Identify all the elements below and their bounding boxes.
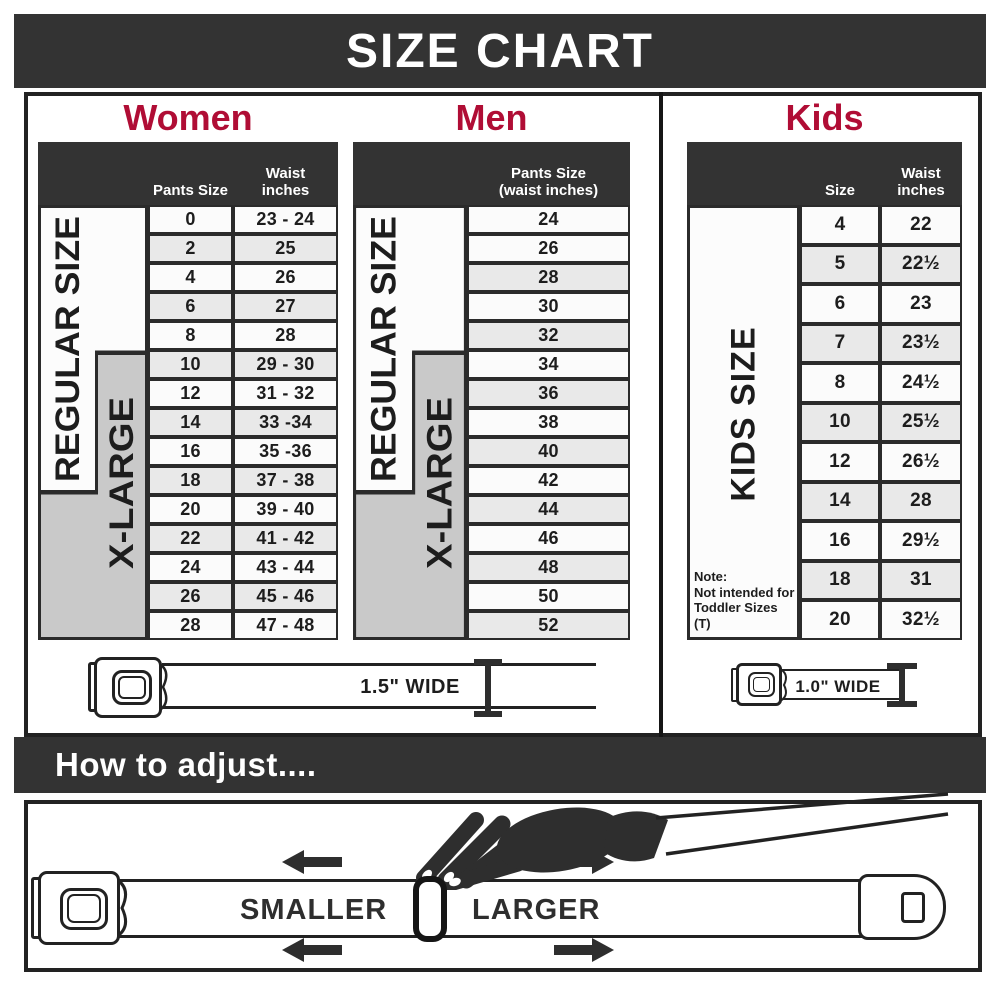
- size-cell: 52: [467, 611, 630, 640]
- size-cell: 10: [148, 350, 233, 379]
- size-cell: 37 - 38: [233, 466, 338, 495]
- women-xlarge-label: X-LARGE: [103, 397, 141, 569]
- size-cell: 22: [148, 524, 233, 553]
- size-cell: 5: [800, 245, 880, 285]
- howto-buckle-inner-detail: [67, 894, 101, 923]
- size-cell: 27: [233, 292, 338, 321]
- size-cell: 31: [880, 561, 962, 601]
- kids-width-measure-icon: [884, 663, 920, 707]
- size-cell: 22½: [880, 245, 962, 285]
- size-cell: 35 -36: [233, 437, 338, 466]
- size-cell: 23½: [880, 324, 962, 364]
- arrow-left-icon: [282, 938, 346, 962]
- kids-size-label: KIDS SIZE: [724, 326, 763, 501]
- arrow-right-icon: [550, 938, 614, 962]
- kids-note: Note: Not intended for Toddler Sizes (T): [694, 569, 797, 631]
- size-cell: 28: [467, 263, 630, 292]
- women-regular-size-label: REGULAR SIZE: [49, 216, 87, 482]
- men-grid: 242628303234363840424446485052: [467, 205, 630, 640]
- hand-adjust-illustration: [390, 790, 950, 890]
- women-size-regions: REGULAR SIZE X-LARGE: [38, 205, 148, 640]
- size-cell: 28: [233, 321, 338, 350]
- size-cell: 33 -34: [233, 408, 338, 437]
- howto-heading: How to adjust....: [55, 746, 317, 784]
- size-cell: 23 - 24: [233, 205, 338, 234]
- kids-waist-col-header: Waist inches: [880, 165, 962, 199]
- size-cell: 24: [467, 205, 630, 234]
- size-cell: 26: [233, 263, 338, 292]
- size-cell: 25½: [880, 403, 962, 443]
- size-cell: 28: [880, 482, 962, 522]
- size-cell: 39 - 40: [233, 495, 338, 524]
- size-chart-infographic: SIZE CHART Women Men Kids Pants Size Wai…: [0, 0, 1000, 1000]
- size-cell: 4: [800, 205, 880, 245]
- size-cell: 26½: [880, 442, 962, 482]
- men-size-regions: REGULAR SIZE X-LARGE: [353, 205, 467, 640]
- size-cell: 14: [800, 482, 880, 522]
- size-cell: 24: [148, 553, 233, 582]
- belt-adjuster-slider: [413, 876, 447, 942]
- women-heading: Women: [38, 96, 338, 140]
- size-cell: 0: [148, 205, 233, 234]
- kids-heading: Kids: [687, 96, 962, 140]
- kids-buckle-inner-detail: [753, 677, 770, 692]
- kids-size-region: KIDS SIZE Note: Not intended for Toddler…: [687, 205, 800, 640]
- size-cell: 41 - 42: [233, 524, 338, 553]
- size-cell: 16: [800, 521, 880, 561]
- women-table-header: Pants Size Waist inches: [38, 142, 338, 205]
- size-cell: 8: [800, 363, 880, 403]
- size-cell: 20: [148, 495, 233, 524]
- size-cell: 29½: [880, 521, 962, 561]
- men-pants-col-header: Pants Size (waist inches): [467, 165, 630, 199]
- size-cell: 50: [467, 582, 630, 611]
- size-cell: 23: [880, 284, 962, 324]
- size-cell: 45 - 46: [233, 582, 338, 611]
- size-cell: 6: [800, 284, 880, 324]
- size-cell: 36: [467, 379, 630, 408]
- size-cell: 10: [800, 403, 880, 443]
- adult-buckle-inner-detail: [118, 676, 146, 699]
- tongue-slot: [901, 892, 925, 923]
- size-cell: 4: [148, 263, 233, 292]
- size-cell: 6: [148, 292, 233, 321]
- kids-size-col-header: Size: [800, 182, 880, 199]
- size-cell: 29 - 30: [233, 350, 338, 379]
- size-cell: 26: [148, 582, 233, 611]
- size-cell: 26: [467, 234, 630, 263]
- size-cell: 8: [148, 321, 233, 350]
- size-cell: 7: [800, 324, 880, 364]
- size-cell: 32½: [880, 600, 962, 640]
- size-cell: 28: [148, 611, 233, 640]
- adult-belt-width-label: 1.5" WIDE: [340, 676, 480, 699]
- men-xlarge-label: X-LARGE: [421, 397, 460, 569]
- size-cell: 30: [467, 292, 630, 321]
- larger-label: LARGER: [472, 894, 597, 927]
- size-cell: 32: [467, 321, 630, 350]
- smaller-label: SMALLER: [240, 894, 385, 927]
- size-cell: 42: [467, 466, 630, 495]
- women-pants-col-header: Pants Size: [148, 182, 233, 199]
- size-cell: 24½: [880, 363, 962, 403]
- size-cell: 16: [148, 437, 233, 466]
- kids-grid: 422522½623723½824½1025½1226½14281629½183…: [800, 205, 962, 640]
- size-cell: 12: [800, 442, 880, 482]
- men-regular-size-label: REGULAR SIZE: [365, 216, 404, 482]
- size-cell: 18: [148, 466, 233, 495]
- size-cell: 44: [467, 495, 630, 524]
- size-cell: 22: [880, 205, 962, 245]
- size-cell: 31 - 32: [233, 379, 338, 408]
- size-cell: 40: [467, 437, 630, 466]
- arrow-left-icon: [282, 850, 346, 874]
- kids-table-header: Size Waist inches: [687, 142, 962, 205]
- size-cell: 18: [800, 561, 880, 601]
- size-cell: 34: [467, 350, 630, 379]
- men-heading: Men: [353, 96, 630, 140]
- size-cell: 20: [800, 600, 880, 640]
- size-cell: 2: [148, 234, 233, 263]
- size-cell: 47 - 48: [233, 611, 338, 640]
- panel-divider: [659, 92, 663, 737]
- size-cell: 43 - 44: [233, 553, 338, 582]
- size-cell: 25: [233, 234, 338, 263]
- size-cell: 12: [148, 379, 233, 408]
- howto-banner: How to adjust....: [14, 737, 986, 793]
- size-cell: 14: [148, 408, 233, 437]
- kids-belt-width-label: 1.0" WIDE: [790, 677, 886, 697]
- size-cell: 46: [467, 524, 630, 553]
- size-cell: 48: [467, 553, 630, 582]
- men-table-header: Pants Size (waist inches): [353, 142, 630, 205]
- women-grid: 023 - 242254266278281029 - 301231 - 3214…: [148, 205, 338, 640]
- adult-width-measure-icon: [472, 659, 504, 717]
- women-waist-col-header: Waist inches: [233, 165, 338, 199]
- size-cell: 38: [467, 408, 630, 437]
- title-banner: SIZE CHART: [14, 14, 986, 88]
- page-title: SIZE CHART: [346, 24, 654, 79]
